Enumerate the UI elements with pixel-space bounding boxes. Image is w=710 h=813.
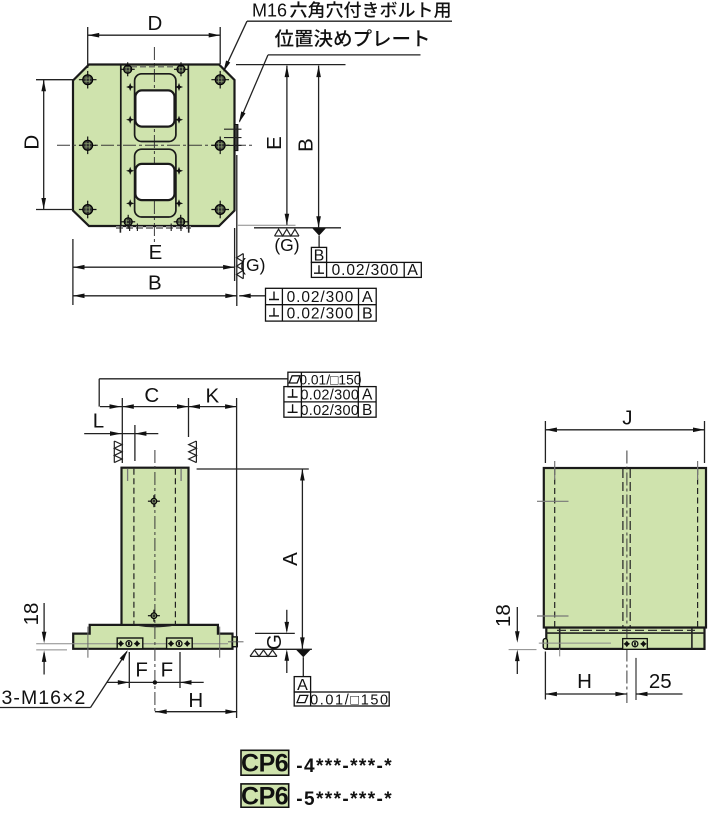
svg-text:E: E: [149, 241, 163, 264]
svg-text:B: B: [295, 138, 318, 152]
svg-text:-5***-***-*: -5***-***-*: [296, 789, 393, 808]
svg-text:0.02/300: 0.02/300: [300, 388, 359, 404]
svg-text:CP6: CP6: [241, 750, 288, 778]
svg-text:(G): (G): [240, 255, 265, 275]
svg-text:B: B: [362, 306, 373, 323]
svg-text:3-M16×2: 3-M16×2: [2, 687, 87, 709]
svg-text:L: L: [93, 410, 104, 433]
svg-text:B: B: [148, 272, 162, 295]
svg-text:A: A: [407, 262, 418, 279]
svg-text:D: D: [147, 12, 162, 35]
svg-text:H: H: [577, 670, 592, 693]
svg-text:18: 18: [492, 604, 515, 627]
svg-text:0.02/300: 0.02/300: [332, 262, 400, 279]
svg-text:25: 25: [649, 670, 672, 693]
svg-text:18: 18: [20, 603, 43, 626]
svg-text:(G): (G): [274, 235, 299, 255]
svg-text:D: D: [20, 135, 43, 150]
svg-text:0.01/□150: 0.01/□150: [299, 372, 361, 387]
svg-text:J: J: [622, 406, 632, 429]
svg-text:0.02/300: 0.02/300: [287, 306, 355, 323]
svg-text:CP6: CP6: [241, 783, 288, 808]
svg-text:-4***-***-*: -4***-***-*: [296, 756, 393, 777]
svg-text:M16: M16: [252, 1, 287, 21]
svg-text:0.02/300: 0.02/300: [300, 403, 359, 419]
svg-text:A: A: [279, 552, 302, 566]
svg-text:B: B: [362, 402, 372, 419]
svg-text:G: G: [263, 634, 286, 650]
svg-text:C: C: [144, 384, 159, 407]
svg-text:E: E: [263, 136, 286, 150]
svg-text:K: K: [206, 384, 220, 407]
svg-text:0.02/300: 0.02/300: [287, 289, 355, 306]
svg-text:A: A: [362, 289, 373, 306]
svg-text:F: F: [135, 658, 148, 681]
svg-text:0.01/□150: 0.01/□150: [310, 692, 390, 708]
svg-text:H: H: [188, 689, 203, 712]
svg-text:F: F: [161, 658, 174, 681]
